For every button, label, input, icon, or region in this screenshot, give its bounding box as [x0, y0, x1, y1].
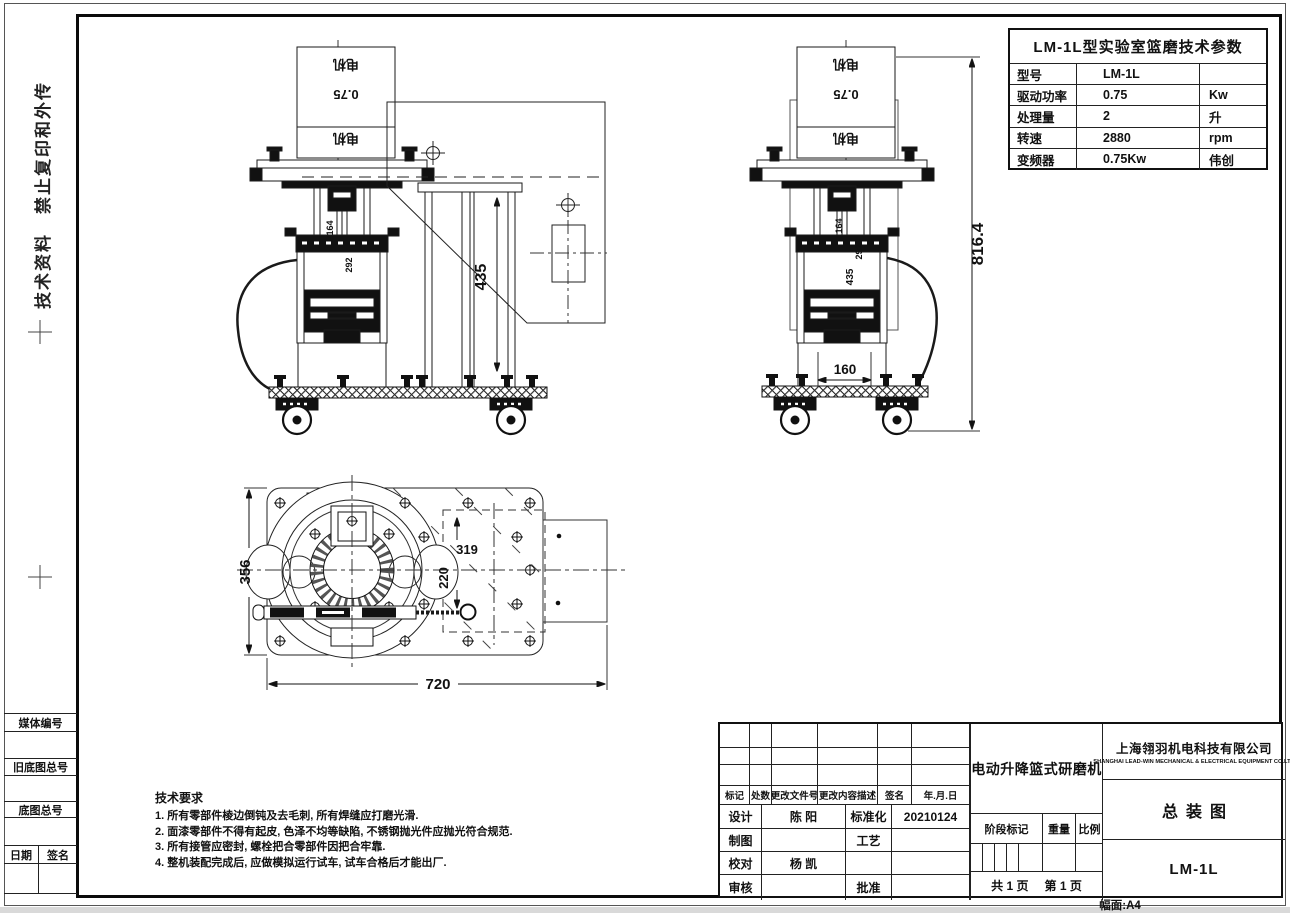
param-value: 0.75: [1077, 85, 1200, 106]
tech-req-item: 3. 所有接管应密封, 螺栓把合零部件因把合牢靠.: [155, 840, 500, 856]
tech-req-title: 技术要求: [155, 789, 500, 806]
param-unit: rpm: [1200, 128, 1266, 149]
role-value: [892, 875, 970, 900]
param-value: LM-1L: [1077, 64, 1200, 85]
drawing-title: 总装图: [1103, 780, 1285, 840]
role-name: [762, 829, 846, 852]
role-name: 陈 阳: [762, 805, 846, 829]
stage-mark-cells: [971, 844, 1102, 872]
sign-label: 签名: [39, 846, 77, 863]
title-block-middle: 电动升降篮式研磨机 阶段标记 重量 比例 共 1 页 第 1 页: [970, 724, 1102, 900]
param-name: 处理量: [1010, 106, 1077, 127]
role-label: 批准: [846, 875, 892, 900]
role-label: 设计: [720, 805, 762, 829]
role-label: 制图: [720, 829, 762, 852]
revision-header-cell: 更改内容描述: [818, 786, 878, 805]
old-base-number-box: [4, 775, 77, 801]
role-name: 杨 凯: [762, 852, 846, 875]
date-sign-box: [4, 863, 77, 893]
role-value: 20210124: [892, 805, 970, 829]
margin-bottom-box: [4, 893, 77, 906]
tech-req-item: 4. 整机装配完成后, 应做模拟运行试车, 试车合格后才能出厂.: [155, 856, 500, 872]
param-name: 型号: [1010, 64, 1077, 85]
date-label: 日期: [4, 846, 39, 863]
media-number-label: 媒体编号: [4, 713, 77, 731]
title-block: 标记 处数 更改文件号 更改内容描述 签名 年.月.日 设计 陈 阳 标准化 2…: [718, 722, 1283, 898]
roles-grid: 设计 陈 阳 标准化 20210124 制图 工艺 校对 杨 凯 审核 批准: [720, 805, 970, 900]
param-value: 2880: [1077, 128, 1200, 149]
revision-header-row: 标记 处数 更改文件号 更改内容描述 签名 年.月.日: [720, 786, 970, 805]
param-unit: 伟创: [1200, 149, 1266, 170]
pages-total: 共 1 页: [991, 877, 1028, 894]
role-name: [762, 875, 846, 900]
revision-header-cell: 更改文件号: [772, 786, 818, 805]
scale-label: 比例: [1076, 814, 1103, 844]
revision-header-cell: 签名: [878, 786, 912, 805]
date-sign-header: 日期 签名: [4, 845, 77, 863]
param-unit: Kw: [1200, 85, 1266, 106]
title-block-right: 上海翎羽机电科技有限公司 SHANGHAI LEAD-WIN MECHANICA…: [1102, 724, 1285, 900]
old-base-number-label: 旧底图总号: [4, 758, 77, 775]
role-label: 审核: [720, 875, 762, 900]
role-label: [846, 852, 892, 875]
role-value: [892, 852, 970, 875]
confidentiality-notice: 技术资料 禁止复印和外传: [29, 30, 51, 360]
role-label: 工艺: [846, 829, 892, 852]
params-table-title: LM-1L型实验室篮磨技术参数: [1010, 30, 1266, 64]
param-name: 变频器: [1010, 149, 1077, 170]
tech-req-item: 2. 面漆零部件不得有起皮, 色泽不均等缺陷, 不锈钢抛光件应抛光符合规范.: [155, 825, 500, 841]
revision-header-cell: 标记: [720, 786, 750, 805]
company-name-cn: 上海翎羽机电科技有限公司: [1116, 738, 1272, 757]
param-name: 驱动功率: [1010, 85, 1077, 106]
base-number-box: [4, 817, 77, 845]
param-name: 转速: [1010, 128, 1077, 149]
stage-row: 阶段标记 重量 比例: [971, 814, 1102, 844]
media-number-box: [4, 731, 77, 758]
role-value: [892, 829, 970, 852]
product-name: 电动升降篮式研磨机: [971, 724, 1102, 814]
param-value: 0.75Kw: [1077, 149, 1200, 170]
revision-empty-grid: [720, 724, 970, 786]
page-count-row: 共 1 页 第 1 页: [971, 872, 1102, 899]
tech-params-table: LM-1L型实验室篮磨技术参数 型号 LM-1L 驱动功率 0.75 Kw 处理…: [1008, 28, 1268, 170]
pages-current: 第 1 页: [1045, 877, 1082, 894]
company-cell: 上海翎羽机电科技有限公司 SHANGHAI LEAD-WIN MECHANICA…: [1103, 724, 1285, 780]
param-unit: 升: [1200, 106, 1266, 127]
tech-req-item: 1. 所有零部件棱边倒钝及去毛刺, 所有焊缝应打磨光滑.: [155, 809, 500, 825]
weight-label: 重量: [1043, 814, 1076, 844]
sheet-format-label: 幅面:A4: [1050, 897, 1190, 913]
params-table-body: 型号 LM-1L 驱动功率 0.75 Kw 处理量 2 升 转速 2880 rp…: [1010, 64, 1266, 170]
revision-header-cell: 处数: [750, 786, 772, 805]
stage-label: 阶段标记: [971, 814, 1043, 844]
param-unit: [1200, 64, 1266, 85]
role-label: 校对: [720, 852, 762, 875]
drawing-number: LM-1L: [1103, 840, 1285, 899]
base-number-label: 底图总号: [4, 801, 77, 817]
margin-index-boxes: 媒体编号 旧底图总号 底图总号 日期 签名: [4, 713, 77, 906]
revision-header-cell: 年.月.日: [912, 786, 970, 805]
role-label: 标准化: [846, 805, 892, 829]
technical-requirements: 技术要求 1. 所有零部件棱边倒钝及去毛刺, 所有焊缝应打磨光滑. 2. 面漆零…: [155, 789, 500, 871]
company-name-en: SHANGHAI LEAD-WIN MECHANICAL & ELECTRICA…: [1093, 759, 1290, 765]
param-value: 2: [1077, 106, 1200, 127]
